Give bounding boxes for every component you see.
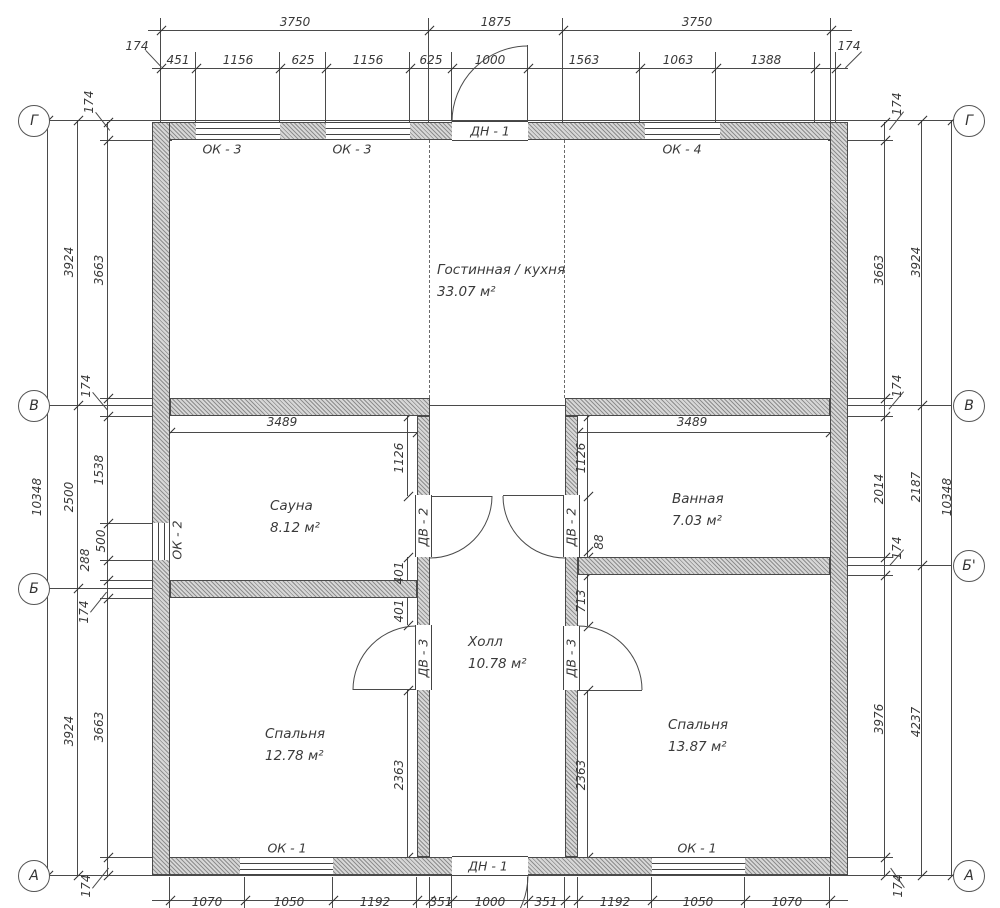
dimension-label: 3663 [92,712,106,743]
dimension-label: 1156 [223,53,254,67]
drawing-line [416,877,417,908]
room-name-5: Спальня [668,717,728,733]
drawing-line [77,120,78,875]
opening-label: ДН - 1 [468,859,508,874]
dimension-label: 401 [392,562,406,585]
floor-plan-canvas: 3750187537501741744511156625115662510001… [0,0,1000,908]
window [152,523,170,560]
dimension-label: 3489 [677,415,708,429]
window [645,122,720,140]
drawing-line [332,877,333,908]
dimension-label: 174 [126,39,149,53]
wall [170,580,417,598]
dimension-label: 3663 [872,255,886,286]
dimension-label: 1126 [392,443,406,474]
drawing-line [587,416,588,557]
drawing-line [47,120,48,875]
dimension-label: 1875 [481,15,512,29]
dimension-label: 174 [77,601,91,624]
window [652,857,745,875]
drawing-line [503,495,565,496]
drawing-line [169,877,170,908]
opening-label: ОК - 3 [332,142,371,157]
room-name-4: Спальня [265,726,325,742]
window [326,122,410,140]
dimension-label: 4237 [909,707,923,738]
opening-label: ДН - 1 [470,124,510,139]
dimension-label: 451 [167,53,190,67]
dimension-label: 1000 [475,53,506,67]
dimension-label: 351 [430,895,453,908]
drawing-line [170,432,417,433]
room-name-1: Сауна [270,498,313,514]
dimension-label: 3489 [267,415,298,429]
drawing-line [451,52,452,121]
axis-marker-right-2: Б' [953,550,985,582]
drawing-line [577,877,578,908]
drawing-line [152,68,848,69]
dimension-label: 2014 [872,474,886,505]
drawing-line [562,18,563,122]
dimension-label: 2363 [574,760,588,791]
dimension-label: 1192 [600,895,631,908]
dimension-label: 625 [420,53,443,67]
opening-label: ДВ - 2 [416,508,431,547]
axis-marker-right-0: Г [953,105,985,137]
drawing-line [107,122,108,875]
drawing-line [715,52,716,122]
dimension-tick [584,492,594,502]
dimension-label: 3924 [62,247,76,278]
drawing-line [428,18,429,122]
door-arc-dv2-left [430,496,492,558]
room-area-3: 10.78 м² [468,656,527,672]
dimension-label: 3924 [62,716,76,747]
dimension-tick [404,686,414,696]
dimension-label: 1050 [683,895,714,908]
dimension-label: 1563 [569,53,600,67]
dimension-label: 288 [78,549,92,572]
drawing-line [244,877,245,908]
dimension-label: 3924 [909,247,923,278]
dimension-label: 3976 [872,704,886,735]
dimension-label: 1126 [574,443,588,474]
room-name-2: Ванная [672,491,724,507]
axis-marker-right-3: А [953,860,985,892]
dimension-label: 500 [94,530,108,553]
room-name-0: Гостинная / кухня [437,262,565,278]
opening-label: ОК - 2 [170,520,185,559]
dimension-label: 1063 [663,53,694,67]
room-area-0: 33.07 м² [437,284,496,300]
dimension-tick [404,492,414,502]
dimension-label: 10348 [30,478,44,516]
drawing-line [429,140,430,398]
axis-marker-right-1: В [953,390,985,422]
drawing-line [195,52,196,122]
drawing-line [814,52,815,122]
dimension-label: 1070 [192,895,223,908]
dimension-label: 174 [79,375,93,398]
opening-label: ОК - 4 [662,142,701,157]
dimension-label: 174 [890,537,904,560]
drawing-line [564,877,565,908]
wall [565,398,830,416]
dimension-label: 88 [592,534,606,549]
dimension-label: 3750 [280,15,311,29]
dimension-label: 174 [891,875,905,898]
dimension-label: 351 [535,895,558,908]
dimension-label: 3663 [92,255,106,286]
dimension-label: 1050 [274,895,305,908]
wall [152,122,170,875]
drawing-line [409,52,410,122]
opening-label: ДВ - 3 [416,639,431,678]
opening-label: ДВ - 3 [564,639,579,678]
axis-marker-left-2: Б [18,573,50,605]
room-area-2: 7.03 м² [672,513,722,529]
drawing-line [639,52,640,122]
wall [830,122,848,875]
dimension-label: 1538 [92,455,106,486]
dimension-label: 2500 [62,482,76,513]
door-arc-dv2-right [503,496,565,558]
drawing-line [527,877,528,908]
dimension-label: 174 [82,91,96,114]
dimension-label: 2187 [909,472,923,503]
room-area-1: 8.12 м² [270,520,320,536]
door-arc-dv3-left [353,626,417,690]
drawing-line [407,416,408,496]
drawing-line [578,432,830,433]
dimension-label: 3750 [682,15,713,29]
drawing-line [651,877,652,908]
dimension-label: 174 [890,375,904,398]
drawing-line [148,30,852,31]
door-arc-dv3-right [578,626,642,690]
drawing-line [744,877,745,908]
room-name-3: Холл [468,634,503,650]
opening-label: ДВ - 2 [564,508,579,547]
dimension-tick [584,622,594,632]
window [240,857,333,875]
drawing-line [830,18,831,122]
dimension-label: 10348 [940,478,954,516]
dimension-label: 2363 [392,760,406,791]
wall [170,398,430,416]
wall [578,557,830,575]
drawing-line [325,52,326,122]
room-area-5: 13.87 м² [668,739,727,755]
dimension-label: 713 [574,590,588,613]
drawing-line [279,52,280,122]
dimension-label: 1070 [772,895,803,908]
axis-marker-left-1: В [18,390,50,422]
room-area-4: 12.78 м² [265,748,324,764]
drawing-line [845,51,862,68]
dimension-label: 174 [838,39,861,53]
window [196,122,280,140]
dimension-label: 1000 [475,895,506,908]
drawing-line [835,52,836,122]
dimension-label: 174 [79,875,93,898]
dimension-label: 174 [890,93,904,116]
opening-label: ОК - 1 [267,841,306,856]
drawing-line [829,877,830,908]
dimension-label: 1156 [353,53,384,67]
dimension-label: 1192 [360,895,391,908]
opening-label: ОК - 1 [677,841,716,856]
axis-marker-left-3: А [18,860,50,892]
dimension-label: 1388 [751,53,782,67]
drawing-line [527,45,528,122]
opening-label: ОК - 3 [202,142,241,157]
drawing-line [430,496,492,497]
dimension-label: 401 [392,600,406,623]
drawing-line [407,690,408,857]
axis-marker-left-0: Г [18,105,50,137]
dimension-label: 625 [292,53,315,67]
